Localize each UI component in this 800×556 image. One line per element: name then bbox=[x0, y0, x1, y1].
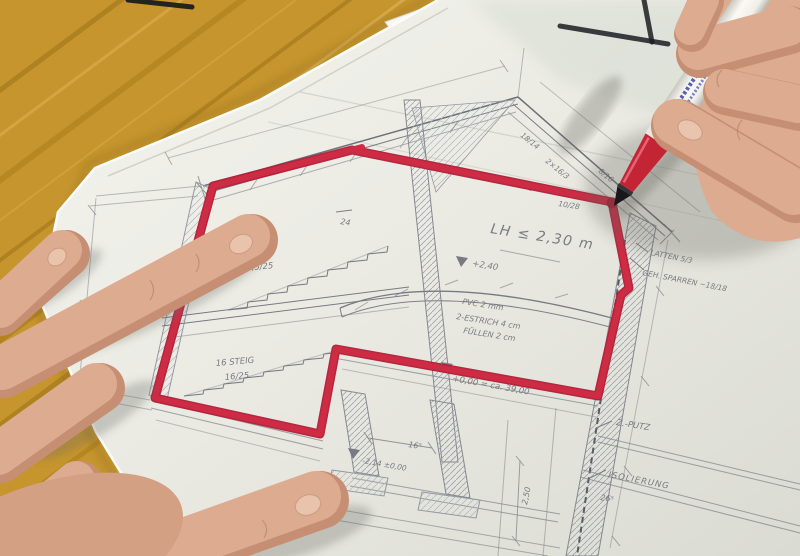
annotation-dim-beam: 24 bbox=[340, 217, 351, 227]
annotation-stairs-lower-2: 16/25 bbox=[224, 371, 249, 383]
right-middle-finger bbox=[724, 88, 798, 104]
photo-architectural-drawing: LH ≤ 2,30 m +2,40 PVC 2 mm 2-ESTRICH 4 c… bbox=[0, 0, 800, 556]
right-fingertip bbox=[690, 0, 704, 30]
